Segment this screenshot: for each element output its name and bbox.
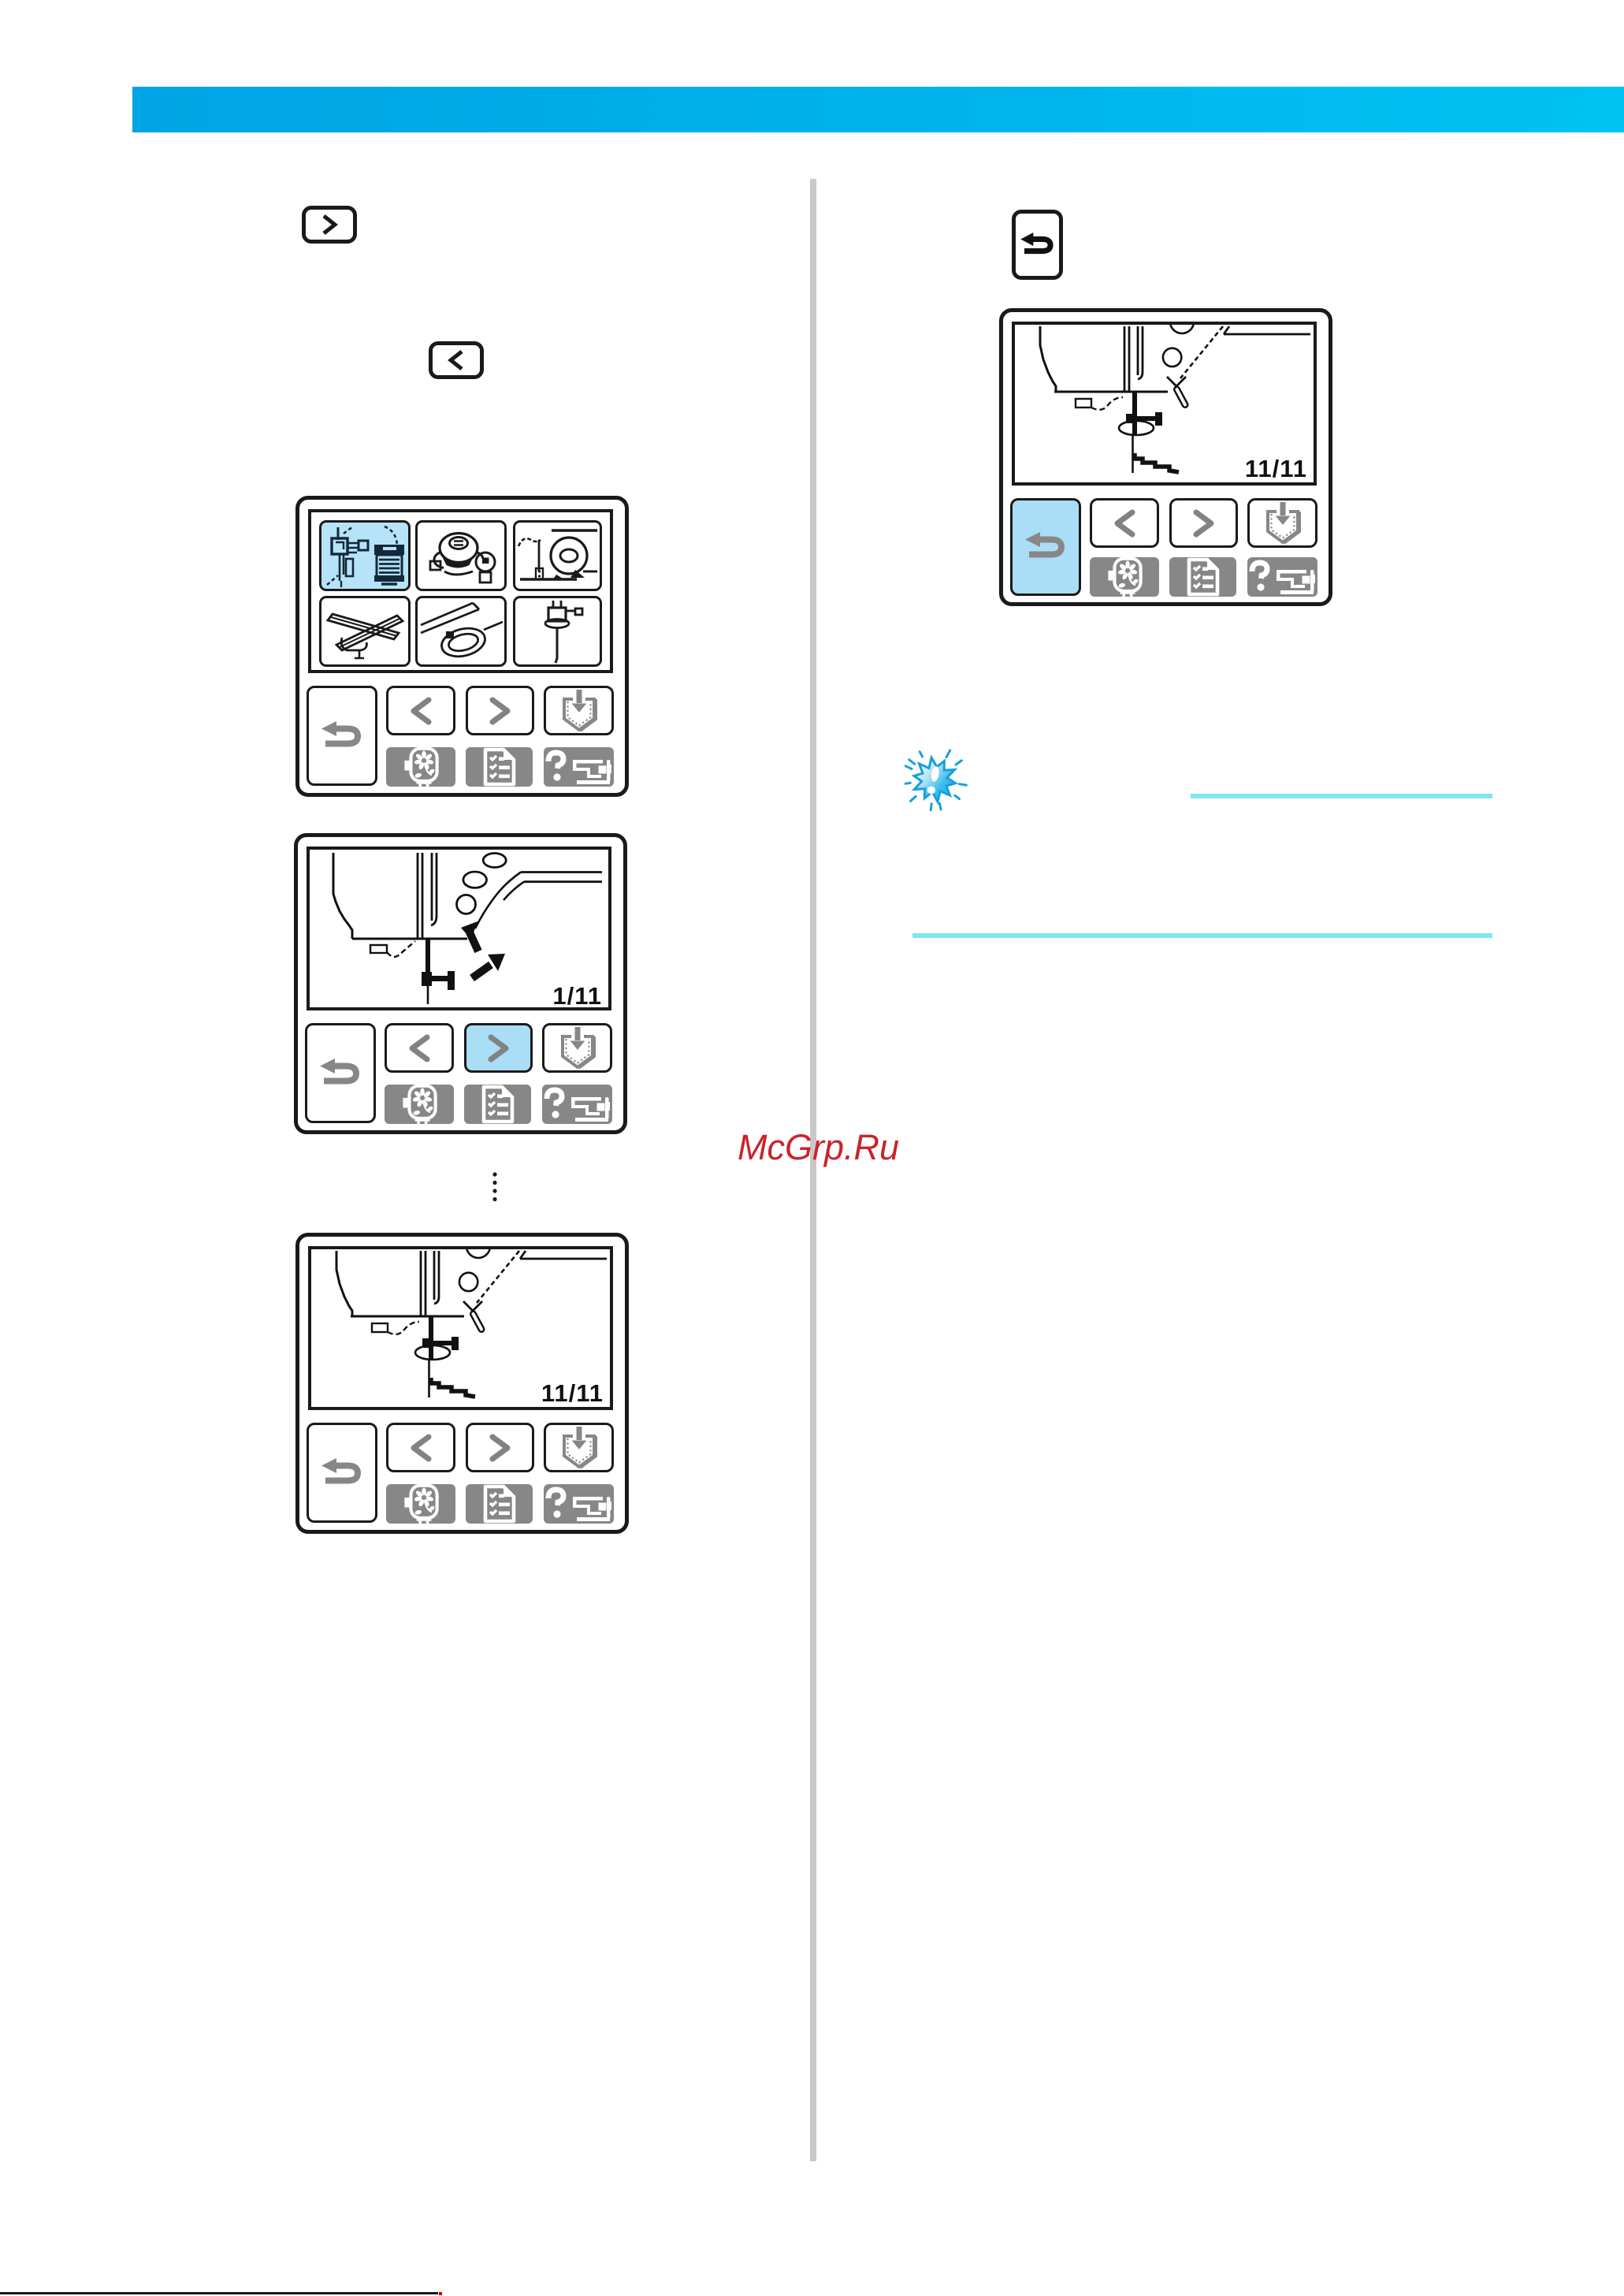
svg-text:11/11: 11/11 (541, 1379, 604, 1407)
svg-text:1/11: 1/11 (552, 982, 602, 1007)
svg-text:11/11: 11/11 (1245, 455, 1307, 482)
